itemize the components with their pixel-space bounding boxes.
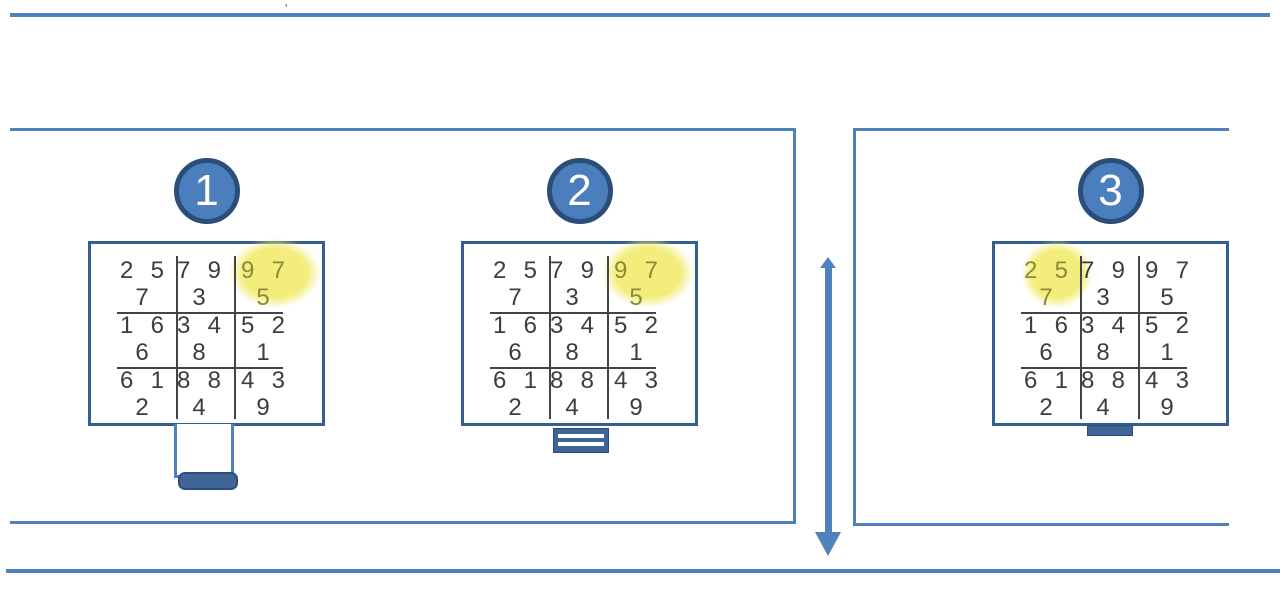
bottom-border-line xyxy=(6,569,1280,573)
device-stand-neck xyxy=(174,424,234,478)
grid-cell: 257 xyxy=(995,254,1081,309)
slide-canvas: ' 1 257793975166348521612884439 2 xyxy=(0,0,1280,591)
grid-cell: 884 xyxy=(1081,364,1139,419)
grid-cell: 257 xyxy=(91,254,177,309)
grid-cell: 166 xyxy=(91,309,177,364)
grid-cells: 257793975166348521612884439 xyxy=(464,254,695,419)
stand-stripe xyxy=(558,434,604,438)
grid-cell: 975 xyxy=(1139,254,1226,309)
device-stand-base xyxy=(553,428,609,453)
grid-cell: 439 xyxy=(608,364,695,419)
grid-cells: 257793975166348521612884439 xyxy=(91,254,322,419)
grid-cell: 793 xyxy=(550,254,608,309)
grid-cell: 884 xyxy=(177,364,235,419)
grid-cell: 793 xyxy=(177,254,235,309)
device-stand-plug xyxy=(178,472,238,490)
grid-cell: 612 xyxy=(91,364,177,419)
grid-cell: 612 xyxy=(995,364,1081,419)
grid-cell: 975 xyxy=(608,254,695,309)
grid-cell: 348 xyxy=(177,309,235,364)
grid-cell: 439 xyxy=(235,364,322,419)
down-arrow-shaft xyxy=(825,266,832,534)
grid-cell: 793 xyxy=(1081,254,1139,309)
panel-2: 2 257793975166348521612884439 xyxy=(461,156,698,501)
number-grid-3: 257793975166348521612884439 xyxy=(992,241,1229,426)
panel-3: 3 257793975166348521612884439 xyxy=(992,156,1229,501)
grid-cell: 348 xyxy=(1081,309,1139,364)
stray-mark: ' xyxy=(285,1,287,16)
grid-cell: 884 xyxy=(550,364,608,419)
step-badge-3: 3 xyxy=(1078,158,1144,224)
grid-cells: 257793975166348521612884439 xyxy=(995,254,1226,419)
grid-cell: 521 xyxy=(608,309,695,364)
stand-stripe xyxy=(558,442,604,446)
device-stand-base xyxy=(1087,425,1133,436)
top-border-line xyxy=(10,13,1270,17)
grid-cell: 257 xyxy=(464,254,550,309)
step-badge-2: 2 xyxy=(547,158,613,224)
number-grid-2: 257793975166348521612884439 xyxy=(461,241,698,426)
grid-cell: 439 xyxy=(1139,364,1226,419)
grid-cell: 521 xyxy=(1139,309,1226,364)
grid-cell: 521 xyxy=(235,309,322,364)
panel-1: 1 257793975166348521612884439 xyxy=(88,156,325,501)
grid-cell: 348 xyxy=(550,309,608,364)
down-arrow-icon xyxy=(815,532,841,556)
grid-cell: 166 xyxy=(464,309,550,364)
step-number: 1 xyxy=(194,169,218,213)
grid-cell: 166 xyxy=(995,309,1081,364)
step-number: 2 xyxy=(567,169,591,213)
step-badge-1: 1 xyxy=(174,158,240,224)
grid-cell: 975 xyxy=(235,254,322,309)
number-grid-1: 257793975166348521612884439 xyxy=(88,241,325,426)
step-number: 3 xyxy=(1098,169,1122,213)
grid-cell: 612 xyxy=(464,364,550,419)
